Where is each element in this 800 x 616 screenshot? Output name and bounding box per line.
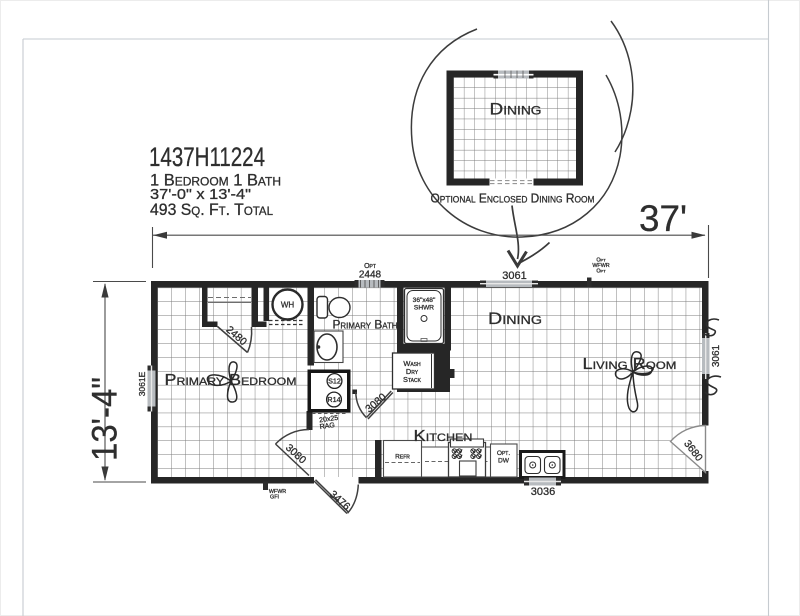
svg-text:Optional Enclosed Dining Room: Optional Enclosed Dining Room	[431, 191, 595, 206]
svg-text:Dining: Dining	[488, 310, 542, 328]
svg-text:36"x48": 36"x48"	[413, 297, 436, 304]
svg-text:Kitchen: Kitchen	[414, 428, 473, 445]
svg-text:3036: 3036	[531, 486, 555, 498]
svg-text:GFI: GFI	[270, 495, 279, 501]
svg-text:Refr: Refr	[395, 454, 410, 461]
svg-text:S12: S12	[328, 377, 341, 386]
svg-text:3061: 3061	[502, 270, 526, 282]
svg-text:Opt.: Opt.	[497, 450, 511, 457]
svg-text:Opt: Opt	[596, 269, 606, 275]
svg-text:Dining: Dining	[490, 101, 542, 119]
svg-text:R14: R14	[327, 395, 340, 404]
svg-text:Primary Bath: Primary Bath	[333, 318, 398, 332]
svg-text:SHWR: SHWR	[414, 305, 434, 312]
svg-text:DW: DW	[498, 458, 510, 465]
svg-text:13'-4": 13'-4"	[86, 377, 125, 461]
svg-text:2448: 2448	[359, 270, 382, 281]
svg-text:3476: 3476	[327, 488, 353, 513]
svg-text:3061: 3061	[711, 344, 722, 367]
svg-text:37': 37'	[639, 198, 687, 239]
svg-text:Stack: Stack	[403, 375, 422, 384]
svg-text:493 Sq. Ft. Total: 493 Sq. Ft. Total	[150, 201, 273, 219]
svg-text:1437H11224: 1437H11224	[149, 142, 265, 172]
svg-text:WH: WH	[281, 301, 295, 310]
svg-text:3061E: 3061E	[137, 371, 147, 396]
